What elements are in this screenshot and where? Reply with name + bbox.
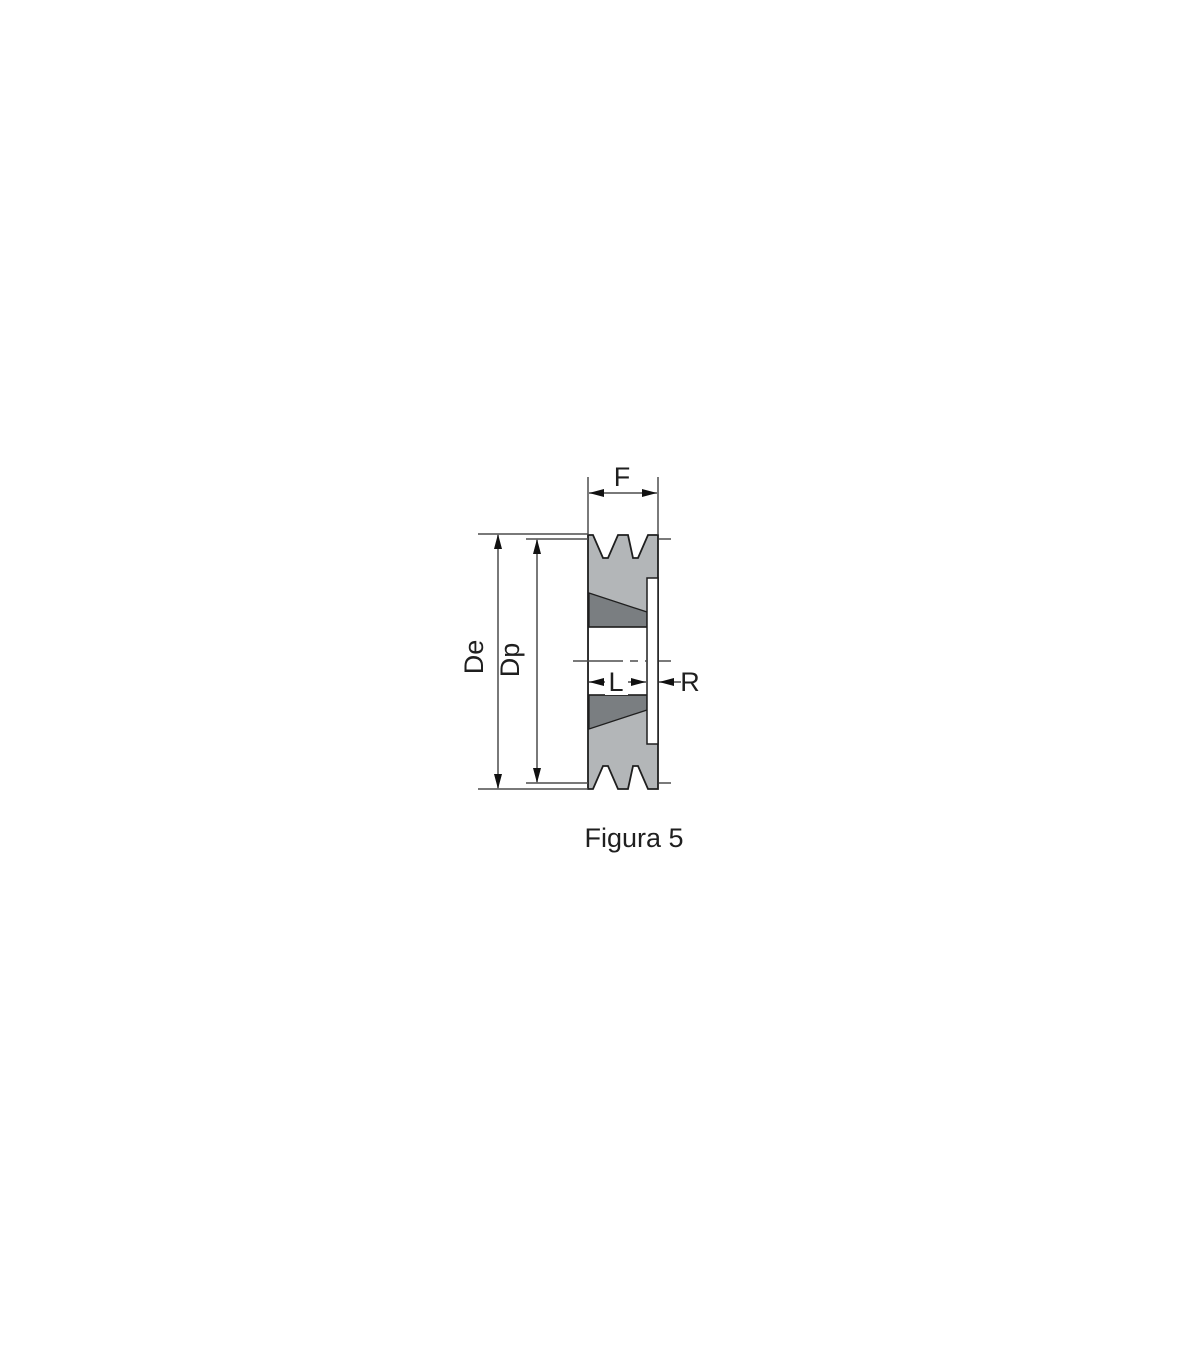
outer-diameter-label: De bbox=[459, 640, 489, 675]
de-arrowhead-top bbox=[494, 534, 502, 549]
pulley-diagram bbox=[588, 535, 658, 789]
pulley-figure-svg: F De Dp L bbox=[0, 0, 1200, 1372]
pitch-diameter-label: Dp bbox=[495, 643, 525, 678]
face-width-label: F bbox=[614, 462, 631, 492]
page-canvas: F De Dp L bbox=[0, 0, 1200, 1372]
hub-length-label: L bbox=[608, 667, 623, 697]
dp-arrowhead-top bbox=[533, 539, 541, 554]
f-arrowhead-left bbox=[589, 489, 604, 497]
de-arrowhead-bottom bbox=[494, 774, 502, 789]
dimension-rim-width: R bbox=[659, 667, 700, 697]
r-arrowhead bbox=[659, 678, 674, 686]
bushing-recess bbox=[647, 578, 658, 744]
dimension-face-width: F bbox=[588, 462, 658, 534]
figure-caption: Figura 5 bbox=[584, 823, 683, 853]
dp-arrowhead-bottom bbox=[533, 768, 541, 783]
f-arrowhead-right bbox=[642, 489, 657, 497]
rim-width-label: R bbox=[680, 667, 700, 697]
